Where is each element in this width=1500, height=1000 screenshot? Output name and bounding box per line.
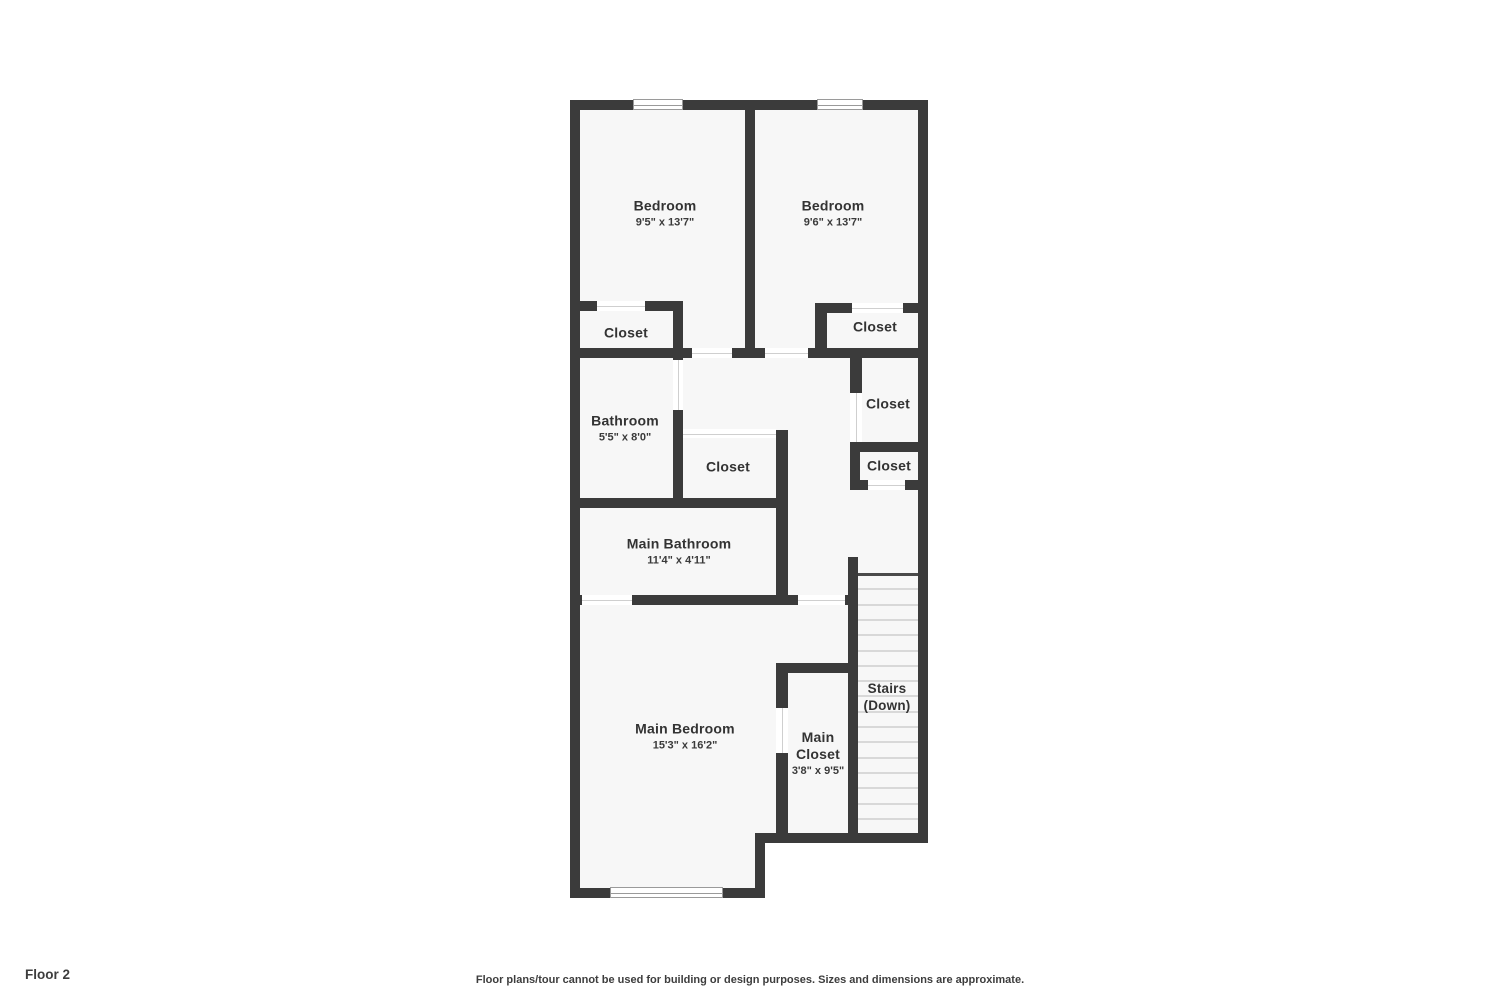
stair-tread-line bbox=[858, 573, 918, 576]
room-label-main-closet: Main Closet 3'8" x 9'5" bbox=[778, 729, 858, 779]
door-main-bedroom bbox=[798, 595, 845, 605]
room-label-closet-mid-right: Closet bbox=[866, 396, 910, 413]
wall-closet-br-bottom-a bbox=[860, 480, 868, 490]
wall-closet-br-bottom-b bbox=[905, 480, 928, 490]
wall-bathroom-bottom bbox=[570, 498, 788, 508]
room-label-main-bathroom: Main Bathroom 11'4" x 4'11" bbox=[627, 536, 732, 569]
room-name: Bedroom bbox=[802, 198, 865, 215]
stair-tread-line bbox=[858, 803, 918, 805]
door-bathroom bbox=[673, 360, 683, 410]
wall-main-closet-left-a bbox=[776, 663, 788, 708]
stair-tread-line bbox=[858, 634, 918, 636]
room-name: Closet bbox=[604, 325, 648, 342]
room-name: Closet bbox=[867, 458, 911, 475]
room-name: Closet bbox=[853, 319, 897, 336]
wall-closet-tr-left bbox=[815, 303, 827, 358]
wall-closet-br-left bbox=[850, 452, 860, 490]
wall-closet-tr-top-b bbox=[903, 303, 928, 313]
floor-plan-page: Bedroom 9'5" x 13'7" Bedroom 9'6" x 13'7… bbox=[0, 0, 1500, 1000]
room-name: Main Bedroom bbox=[635, 721, 735, 738]
stair-tread-line bbox=[858, 772, 918, 774]
door-closet-mr bbox=[850, 393, 862, 442]
stair-tread-line bbox=[858, 604, 918, 606]
room-label-closet-center: Closet bbox=[706, 459, 750, 476]
stair-tread-line bbox=[858, 818, 918, 820]
wall-closet-mr-left bbox=[850, 358, 862, 393]
room-label-bathroom: Bathroom 5'5" x 8'0" bbox=[591, 413, 659, 446]
room-dims: 3'8" x 9'5" bbox=[778, 763, 858, 779]
room-dims: 15'3" x 16'2" bbox=[635, 738, 735, 754]
room-name: Closet bbox=[866, 396, 910, 413]
room-name: Closet bbox=[706, 459, 750, 476]
room-name: Stairs (Down) bbox=[845, 680, 929, 714]
room-label-bedroom-left: Bedroom 9'5" x 13'7" bbox=[634, 198, 697, 231]
window-bedroom-right bbox=[817, 99, 863, 110]
room-label-closet-lower-right: Closet bbox=[867, 458, 911, 475]
door-bedroom-left bbox=[692, 348, 732, 358]
door-closet-tl bbox=[597, 301, 645, 311]
wall-closet-tl-top-b bbox=[645, 301, 675, 311]
room-label-closet-top-right: Closet bbox=[853, 319, 897, 336]
stair-tread-line bbox=[858, 619, 918, 621]
stair-tread-line bbox=[858, 757, 918, 759]
door-bedroom-right bbox=[765, 348, 808, 358]
room-name: Main Closet bbox=[778, 729, 858, 763]
door-closet-tr bbox=[852, 303, 903, 313]
room-label-stairs: Stairs (Down) bbox=[845, 680, 929, 714]
stair-tread-line bbox=[858, 650, 918, 652]
stair-tread-line bbox=[858, 588, 918, 590]
wall-outer-bottom-right bbox=[765, 833, 928, 843]
window-bedroom-left bbox=[633, 99, 683, 110]
stair-tread-line bbox=[858, 726, 918, 728]
room-dims: 5'5" x 8'0" bbox=[591, 430, 659, 446]
wall-closet-center-right bbox=[776, 430, 788, 508]
room-name: Main Bathroom bbox=[627, 536, 732, 553]
room-name: Bedroom bbox=[634, 198, 697, 215]
wall-main-bathroom-right bbox=[776, 508, 788, 605]
stair-tread-line bbox=[858, 787, 918, 789]
room-dims: 9'6" x 13'7" bbox=[802, 215, 865, 231]
wall-main-bedroom-top-a bbox=[570, 595, 582, 605]
window-main-bedroom bbox=[610, 887, 723, 898]
wall-bedroom-divider bbox=[745, 110, 755, 358]
room-dims: 11'4" x 4'11" bbox=[627, 553, 732, 569]
door-main-bathroom bbox=[582, 595, 632, 605]
wall-hall-b bbox=[732, 348, 765, 358]
room-label-closet-top-left: Closet bbox=[604, 325, 648, 342]
wall-main-bedroom-top-b bbox=[632, 595, 798, 605]
wall-bathroom-right bbox=[673, 410, 683, 508]
room-label-main-bedroom: Main Bedroom 15'3" x 16'2" bbox=[635, 721, 735, 754]
door-closet-br bbox=[868, 480, 905, 490]
wall-hall-a bbox=[580, 348, 692, 358]
room-dims: 9'5" x 13'7" bbox=[634, 215, 697, 231]
wall-outer-right bbox=[918, 100, 928, 843]
wall-closet-mr-bottom bbox=[850, 442, 928, 452]
wall-closet-tl-top-a bbox=[580, 301, 597, 311]
room-label-bedroom-right: Bedroom 9'6" x 13'7" bbox=[802, 198, 865, 231]
wall-outer-top bbox=[570, 100, 928, 110]
door-closet-center bbox=[683, 429, 776, 438]
stair-tread-line bbox=[858, 665, 918, 667]
room-name: Bathroom bbox=[591, 413, 659, 430]
disclaimer-text: Floor plans/tour cannot be used for buil… bbox=[0, 974, 1500, 986]
stair-tread-line bbox=[858, 741, 918, 743]
